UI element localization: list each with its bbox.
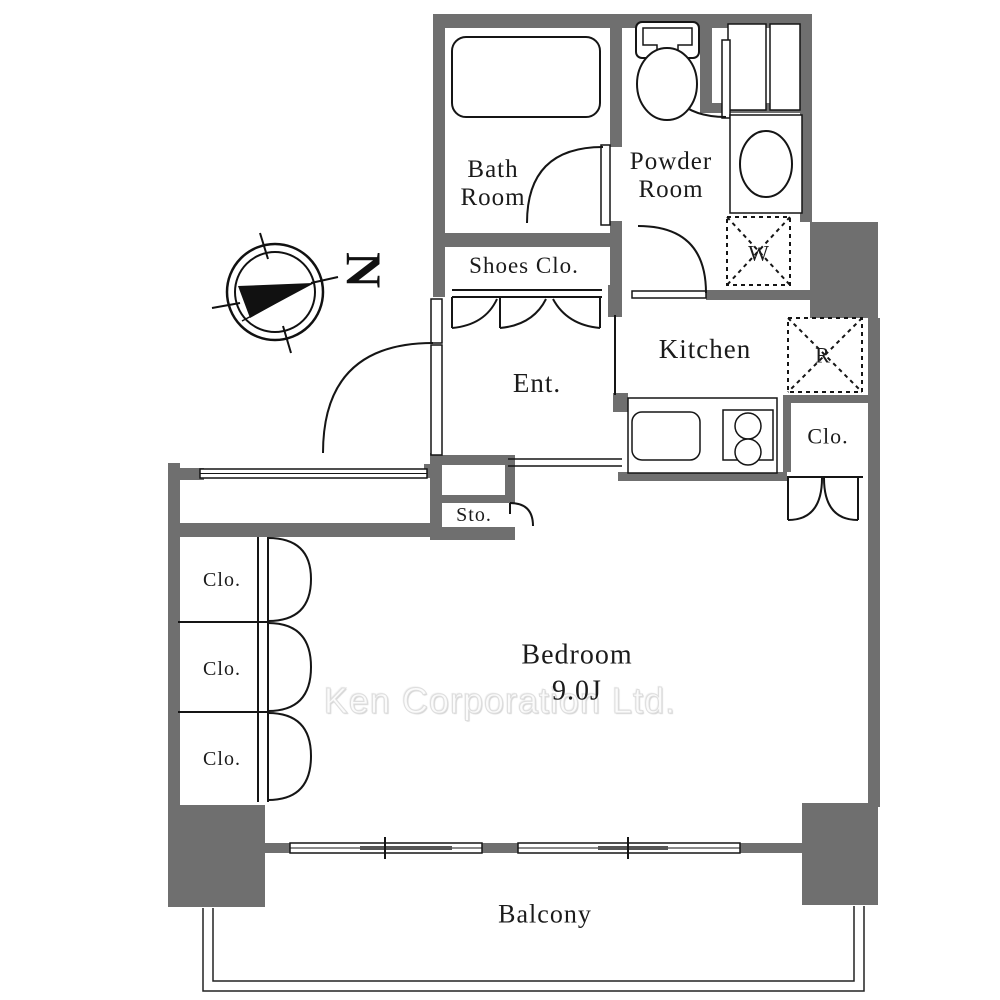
powder-room-door (632, 226, 706, 298)
label-bedroom: Bedroom (477, 639, 677, 670)
label-bedroom-size: 9.0J (517, 675, 637, 706)
burner (735, 439, 761, 465)
balcony-window-left (290, 837, 482, 859)
entrance-door (323, 299, 442, 455)
bath-door (527, 145, 610, 225)
label-closet-1: Clo. (187, 569, 257, 591)
pillar-bottom-left (168, 805, 265, 907)
label-powder-room: Powder Room (621, 148, 721, 204)
window-west (200, 469, 427, 478)
label-refrigerator: R (803, 344, 843, 369)
label-storage: Sto. (434, 504, 514, 526)
label-closet-kitchen: Clo. (788, 425, 868, 450)
pipe-spaces (728, 24, 800, 110)
pillar-top-right (810, 222, 878, 318)
bedroom-closet-doors (268, 538, 311, 800)
bathtub (452, 37, 600, 117)
label-washer: W (739, 242, 779, 267)
label-closet-2: Clo. (187, 658, 257, 680)
label-balcony: Balcony (465, 899, 625, 928)
kitchen-sink (632, 412, 700, 460)
entrance-step-line (508, 459, 622, 466)
label-closet-3: Clo. (187, 748, 257, 770)
kitchen-counter (628, 398, 777, 473)
label-kitchen: Kitchen (625, 334, 785, 364)
balcony-window-right (518, 837, 740, 859)
floor-plan: Ken Corporation Ltd. (0, 0, 1000, 1000)
wash-basin (730, 115, 802, 213)
pillar-bottom-right (802, 803, 878, 905)
partition-lines (178, 290, 863, 802)
shoes-closet-doors (452, 297, 600, 328)
burner (735, 413, 761, 439)
label-entrance: Ent. (477, 368, 597, 398)
kitchen-closet-doors (788, 477, 858, 520)
compass-icon (212, 233, 338, 353)
label-shoes-closet: Shoes Clo. (424, 253, 624, 279)
north-label: N (335, 252, 393, 288)
floor-plan-drawing (0, 0, 1000, 1000)
label-bath-room: Bath Room (454, 156, 532, 212)
toilet (636, 22, 699, 120)
